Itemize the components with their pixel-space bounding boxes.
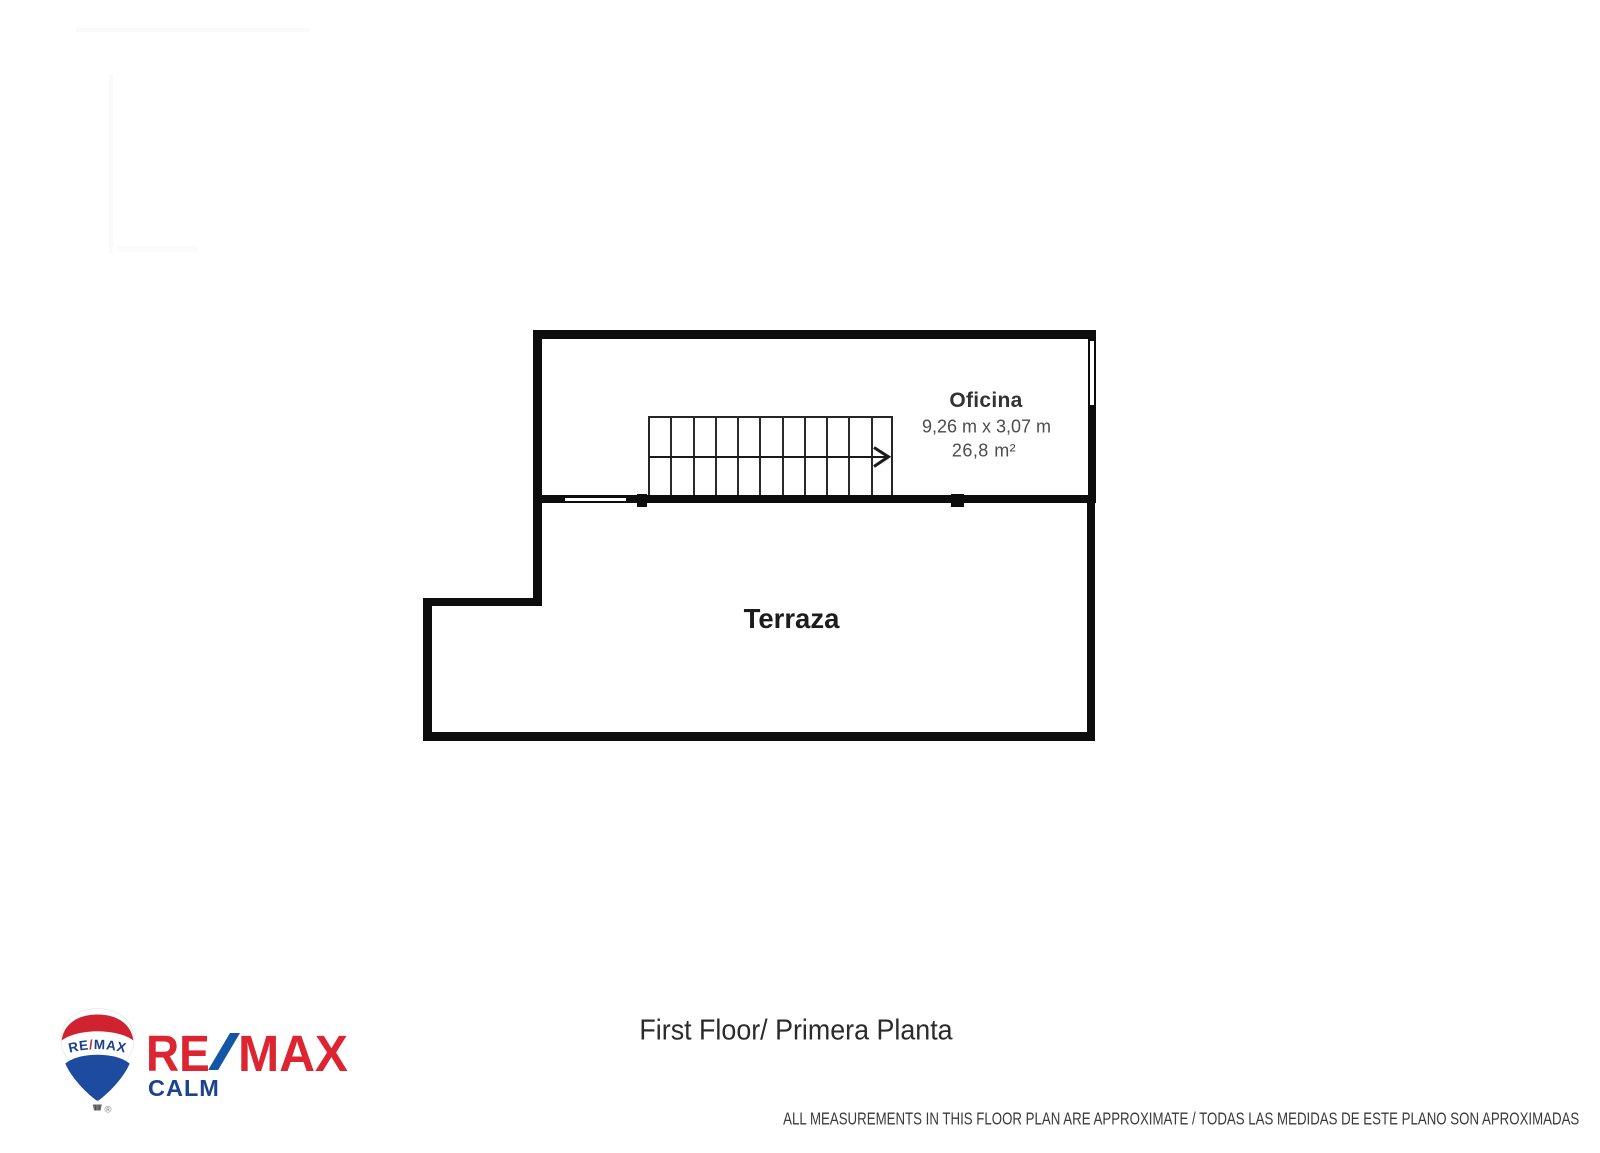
svg-text:®: ®	[105, 1105, 112, 1114]
